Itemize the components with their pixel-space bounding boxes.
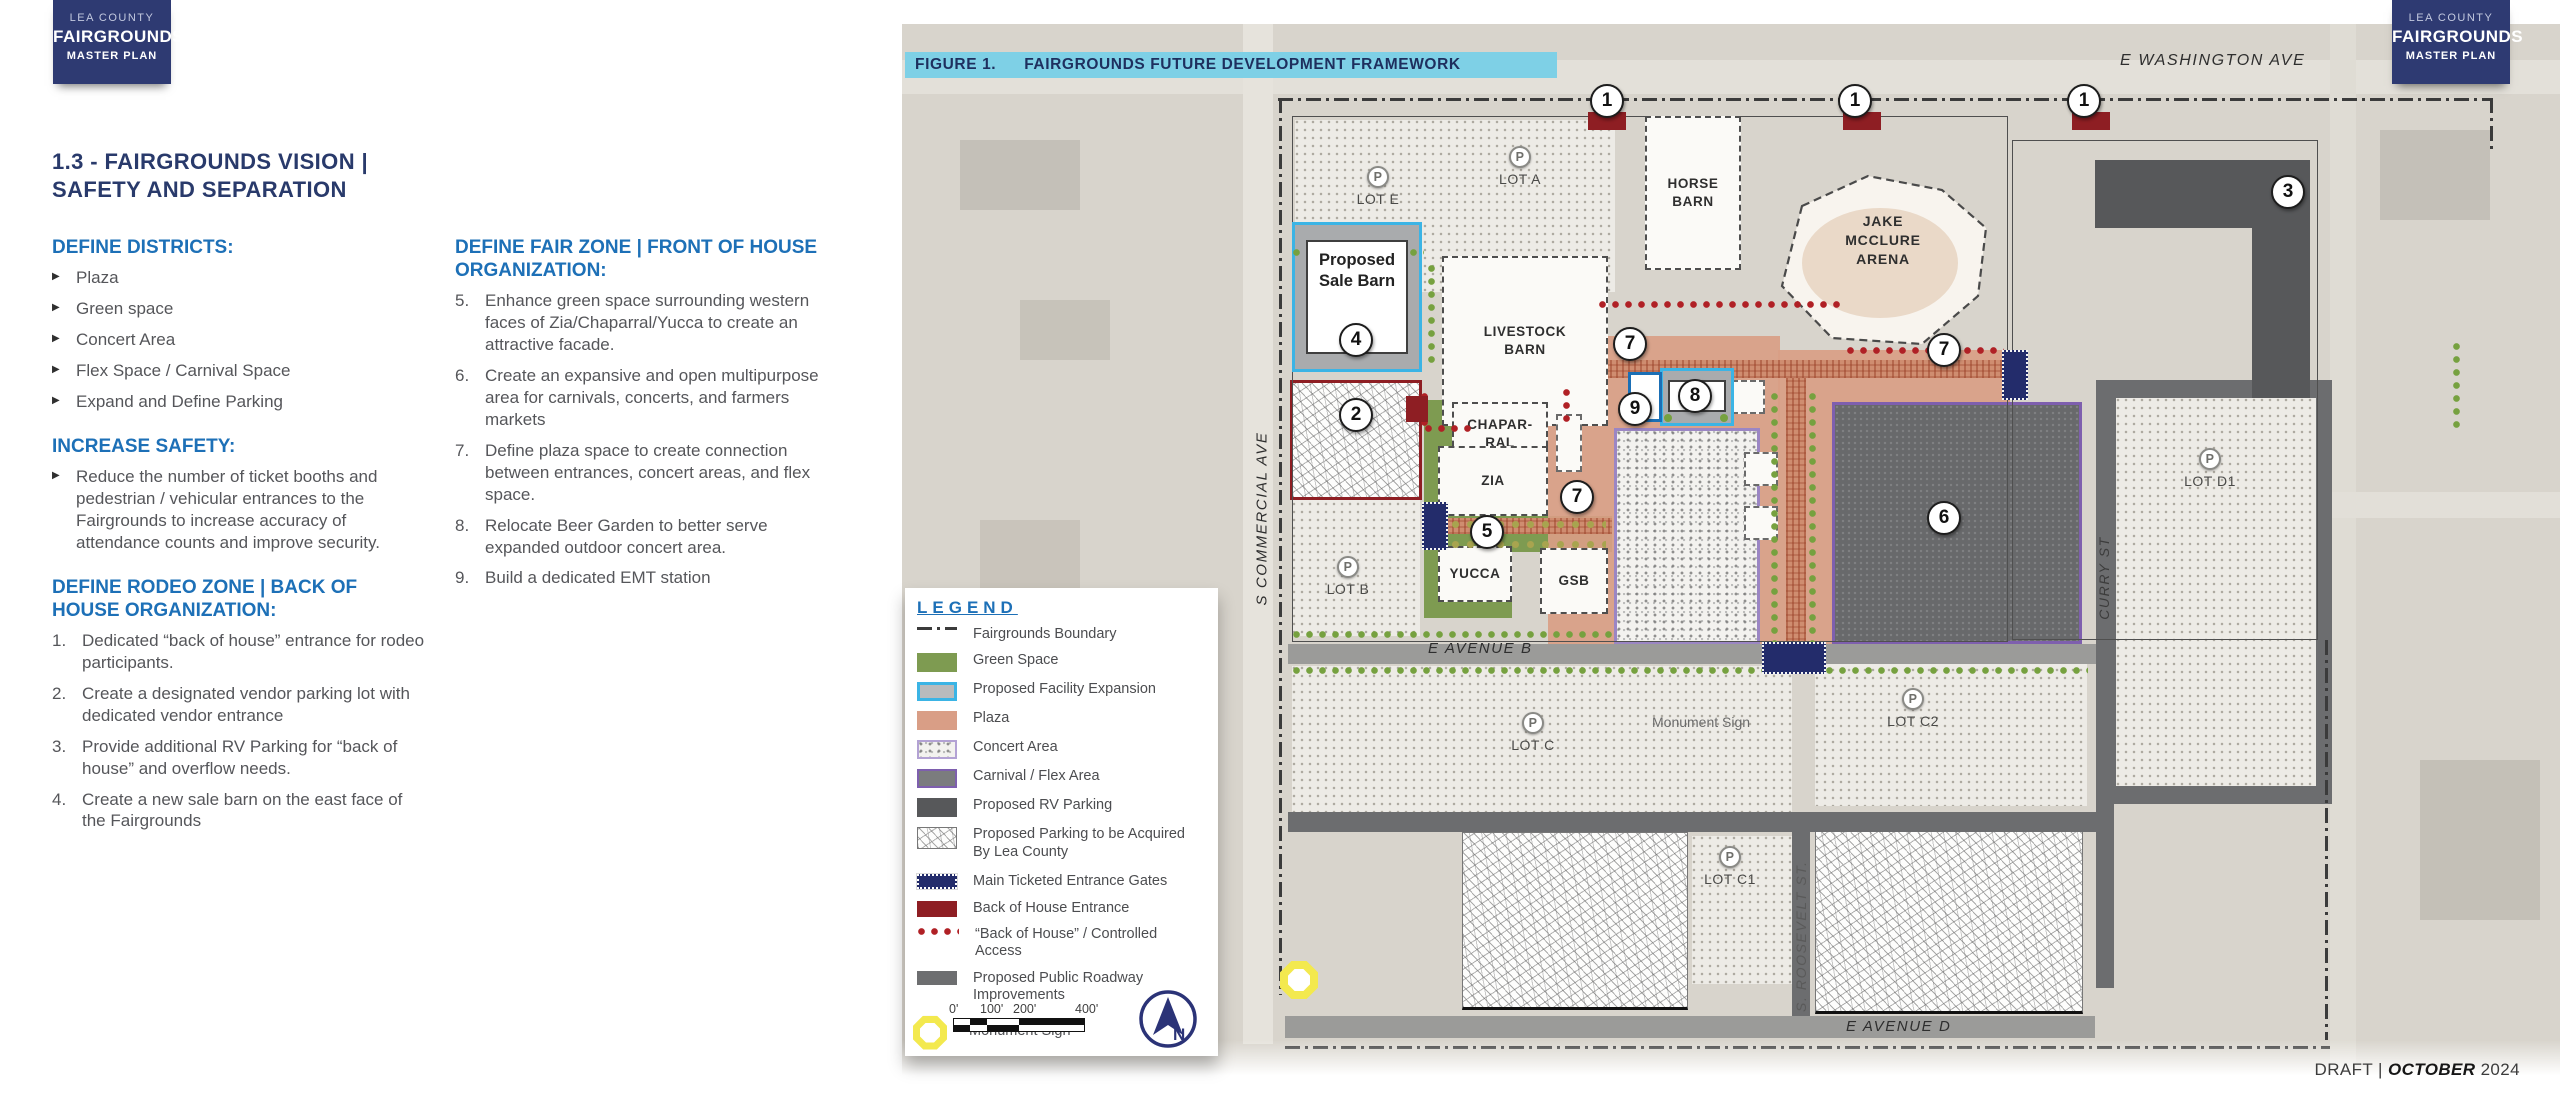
item-number: 3. xyxy=(52,736,74,780)
safety-heading: INCREASE SAFETY: xyxy=(52,435,426,458)
item-number: 6. xyxy=(455,365,477,431)
marker-5-green-space: 5 xyxy=(1470,515,1504,549)
parking-icon: P xyxy=(1337,556,1359,578)
legend-label: Carnival / Flex Area xyxy=(973,768,1100,785)
numbered-item: 4.Create a new sale barn on the east fac… xyxy=(52,789,426,833)
numbered-item: 3.Provide additional RV Parking for “bac… xyxy=(52,736,426,780)
concert-area-swatch xyxy=(917,740,957,759)
green-dotted-livestock xyxy=(1427,264,1436,368)
lot-a-text: LOT A xyxy=(1499,171,1541,187)
lot-d1-text: LOT D1 xyxy=(2184,473,2236,489)
numbered-item: 9.Build a dedicated EMT station xyxy=(455,567,827,589)
horse-barn-label: HORSE BARN xyxy=(1658,175,1728,210)
parking-icon: P xyxy=(1902,688,1924,710)
legend-label: “Back of House” / Controlled Access xyxy=(975,926,1195,961)
yucca-label: YUCCA xyxy=(1449,565,1500,583)
east-parcel-outline xyxy=(2012,140,2318,640)
lot-e-label: PLOT E xyxy=(1340,166,1416,207)
road-e-avenue-b xyxy=(1288,644,2100,664)
numbered-item: 5.Enhance green space surrounding wester… xyxy=(455,290,827,356)
column-districts: DEFINE DISTRICTS: ▶Plaza ▶Green space ▶C… xyxy=(52,236,426,841)
item-text: Build a dedicated EMT station xyxy=(485,567,711,589)
lot-b-label: PLOT B xyxy=(1310,556,1386,597)
bullet-icon: ▶ xyxy=(52,365,64,382)
marker-1-gate-east: 1 xyxy=(2067,84,2101,118)
bullet-icon: ▶ xyxy=(52,272,64,289)
bullet-icon: ▶ xyxy=(52,471,64,554)
green-dotted-east-boundary xyxy=(2452,342,2461,428)
footer-month: OCTOBER xyxy=(2388,1060,2476,1079)
beer-garden-tree xyxy=(1664,414,1672,422)
green-dotted-walkway-east xyxy=(1808,392,1817,644)
bullet-text: Plaza xyxy=(76,267,119,289)
page-title-line2: SAFETY AND SEPARATION xyxy=(52,176,482,204)
acquired-parking-area-southeast xyxy=(1815,818,2083,1014)
acquired-parking-area-southwest xyxy=(1462,832,1688,1010)
entrance-gates-swatch xyxy=(917,874,957,889)
marker-7-plaza-east: 7 xyxy=(1927,333,1961,367)
legend-row-concert: Concert Area xyxy=(917,739,1218,759)
bullet-icon: ▶ xyxy=(52,334,64,351)
badge-plan: MASTER PLAN xyxy=(2392,50,2510,62)
badge-county: LEA COUNTY xyxy=(53,12,171,24)
numbered-item: 2.Create a designated vendor parking lot… xyxy=(52,683,426,727)
controlled-access-swatch xyxy=(917,927,959,936)
lot-a-label: PLOT A xyxy=(1482,146,1558,187)
street-label-commercial: S COMMERCIAL AVE xyxy=(1254,446,1271,606)
bullet-text: Flex Space / Carnival Space xyxy=(76,360,291,382)
aerial-block xyxy=(2380,130,2490,220)
item-number: 2. xyxy=(52,683,74,727)
item-text: Create a designated vendor parking lot w… xyxy=(82,683,426,727)
figure-title-bar: FIGURE 1. FAIRGROUNDS FUTURE DEVELOPMENT… xyxy=(905,52,1557,78)
green-dotted-ave-b-south xyxy=(1292,666,2088,675)
legend-label: Green Space xyxy=(973,652,1058,669)
legend-row-entrance-gates: Main Ticketed Entrance Gates xyxy=(917,873,1218,890)
street-label-roosevelt: S. ROOSEVELT ST. xyxy=(1793,872,1809,1012)
ticketed-entrance-gate-south xyxy=(1762,642,1826,674)
lot-c1-text: LOT C1 xyxy=(1704,871,1756,887)
marker-6-carnival: 6 xyxy=(1927,501,1961,535)
road-lot-c-south xyxy=(1288,812,2098,832)
bullet-item: ▶Flex Space / Carnival Space xyxy=(52,360,426,382)
item-number: 7. xyxy=(455,440,477,506)
item-number: 1. xyxy=(52,630,74,674)
item-number: 8. xyxy=(455,515,477,559)
aerial-block xyxy=(960,140,1080,210)
item-text: Enhance green space surrounding western … xyxy=(485,290,827,356)
badge-county: LEA COUNTY xyxy=(2392,12,2510,24)
boundary-line-left xyxy=(1279,98,1282,995)
arena-label: JAKE MCCLURE ARENA xyxy=(1772,212,1994,269)
aerial-road-vertical-right xyxy=(2330,24,2356,1080)
red-dotted-vertical xyxy=(1562,388,1571,428)
footer-draft: DRAFT xyxy=(2315,1060,2373,1079)
street-label-avenue-d: E AVENUE D xyxy=(1846,1018,1951,1035)
legend-label: Proposed Facility Expansion xyxy=(973,681,1156,698)
marker-7-plaza-north: 7 xyxy=(1613,327,1647,361)
aerial-block xyxy=(1020,300,1110,360)
parking-icon: P xyxy=(1719,846,1741,868)
bullet-text: Concert Area xyxy=(76,329,175,351)
north-letter: N xyxy=(1173,1025,1185,1044)
scale-bar: 0' 100' 200' 400' xyxy=(953,1002,1093,1032)
marker-1-gate-center: 1 xyxy=(1838,84,1872,118)
arena-label-line3: ARENA xyxy=(1772,250,1994,269)
boh-entrance-swatch xyxy=(917,901,957,917)
boundary-line-right xyxy=(2490,98,2493,152)
districts-heading: DEFINE DISTRICTS: xyxy=(52,236,426,259)
marker-2-vendor-lot: 2 xyxy=(1339,398,1373,432)
footer-divider: | xyxy=(2378,1060,2383,1079)
legend-row-boundary: Fairgrounds Boundary xyxy=(917,626,1218,643)
facility-expansion-swatch xyxy=(917,682,957,701)
lot-c2-text: LOT C2 xyxy=(1887,713,1939,729)
figure-label: FIGURE 1. xyxy=(915,56,996,74)
lot-c-text: LOT C xyxy=(1511,737,1554,753)
bullet-item: ▶Plaza xyxy=(52,267,426,289)
legend-panel: LEGEND Fairgrounds Boundary Green Space … xyxy=(905,588,1218,1056)
lot-c-label: PLOT C xyxy=(1495,712,1571,753)
legend-row-facility-expansion: Proposed Facility Expansion xyxy=(917,681,1218,701)
green-space-swatch xyxy=(917,653,957,672)
red-dotted-arena-south xyxy=(1846,346,2004,355)
road-e-avenue-d xyxy=(1285,1016,2095,1038)
legend-row-controlled-access: “Back of House” / Controlled Access xyxy=(917,926,1218,961)
bullet-item: ▶Expand and Define Parking xyxy=(52,391,426,413)
bullet-item: ▶Green space xyxy=(52,298,426,320)
green-dotted-walkway-west xyxy=(1770,392,1779,644)
legend-label: Proposed RV Parking xyxy=(973,797,1112,814)
aerial-road-horizontal-right xyxy=(2330,492,2560,518)
olive-dotted-row-2 xyxy=(1436,540,1606,549)
item-text: Define plaza space to create connection … xyxy=(485,440,827,506)
boh-entrance-vendor xyxy=(1406,396,1428,422)
monument-sign-swatch xyxy=(913,1016,947,1050)
page-title: 1.3 - FAIRGROUNDS VISION | SAFETY AND SE… xyxy=(52,148,482,204)
lot-e-text: LOT E xyxy=(1357,191,1400,207)
marker-7-plaza-west: 7 xyxy=(1560,480,1594,514)
numbered-item: 7.Define plaza space to create connectio… xyxy=(455,440,827,506)
boundary-line-top xyxy=(1278,98,2492,101)
red-dotted-north xyxy=(1598,300,1846,309)
bullet-item: ▶Reduce the number of ticket booths and … xyxy=(52,466,426,554)
arena-label-line2: MCCLURE xyxy=(1772,231,1994,250)
roadway-improvements-swatch xyxy=(917,971,957,985)
livestock-barn-label: LIVESTOCK BARN xyxy=(1470,323,1580,358)
scale-bar-row-2 xyxy=(953,1025,1085,1032)
monument-sign-label: Monument Sign xyxy=(1652,714,1750,730)
yucca-building: YUCCA xyxy=(1438,546,1512,602)
item-number: 9. xyxy=(455,567,477,589)
numbered-item: 1.Dedicated “back of house” entrance for… xyxy=(52,630,426,674)
legend-label: Main Ticketed Entrance Gates xyxy=(973,873,1167,890)
marker-1-gate-west: 1 xyxy=(1590,84,1624,118)
footer-year: 2024 xyxy=(2481,1060,2520,1079)
lot-c2-label: PLOT C2 xyxy=(1875,688,1951,729)
legend-row-boh-entrance: Back of House Entrance xyxy=(917,900,1218,917)
scale-bar-row-1 xyxy=(953,1018,1085,1025)
ticketed-entrance-gate-east xyxy=(2002,350,2028,400)
plaza-swatch xyxy=(917,711,957,730)
item-text: Relocate Beer Garden to better serve exp… xyxy=(485,515,827,559)
item-text: Provide additional RV Parking for “back … xyxy=(82,736,426,780)
parking-icon: P xyxy=(1509,146,1531,168)
legend-row-plaza: Plaza xyxy=(917,710,1218,730)
bullet-icon: ▶ xyxy=(52,303,64,320)
zia-label: ZIA xyxy=(1481,472,1505,490)
lea-county-badge-right: LEA COUNTY FAIRGROUNDS MASTER PLAN xyxy=(2392,0,2510,84)
scale-bar-labels: 0' 100' 200' 400' xyxy=(953,1002,1093,1018)
parking-icon: P xyxy=(1367,166,1389,188)
street-label-avenue-b: E AVENUE B xyxy=(1428,640,1533,657)
arena-label-line1: JAKE xyxy=(1772,212,1994,231)
badge-plan: MASTER PLAN xyxy=(53,50,171,62)
aerial-block xyxy=(2420,760,2540,920)
column-fair-zone: DEFINE FAIR ZONE | FRONT OF HOUSE ORGANI… xyxy=(455,236,827,598)
gsb-label: GSB xyxy=(1558,572,1589,590)
item-text: Create an expansive and open multipurpos… xyxy=(485,365,827,431)
marker-8-beer-garden: 8 xyxy=(1678,379,1712,413)
beer-garden-tree xyxy=(1720,414,1728,422)
acquired-parking-swatch xyxy=(917,827,957,849)
rodeo-heading: DEFINE RODEO ZONE | BACK OF HOUSE ORGANI… xyxy=(52,576,426,622)
fair-heading: DEFINE FAIR ZONE | FRONT OF HOUSE ORGANI… xyxy=(455,236,827,282)
carnival-flex-swatch xyxy=(917,769,957,788)
rv-parking-swatch xyxy=(917,798,957,817)
footer-draft-date: DRAFT | OCTOBER 2024 xyxy=(2315,1060,2520,1080)
boundary-line-right-lower xyxy=(2325,640,2328,1040)
marker-3-rv-parking: 3 xyxy=(2271,175,2305,209)
parking-lot-c2 xyxy=(1815,660,2087,806)
numbered-item: 6.Create an expansive and open multipurp… xyxy=(455,365,827,431)
sale-barn-label-line2: Sale Barn xyxy=(1319,271,1395,292)
bullet-text: Reduce the number of ticket booths and p… xyxy=(76,466,426,554)
livestock-barn: LIVESTOCK BARN xyxy=(1442,256,1608,426)
legend-row-acquired-parking: Proposed Parking to be Acquired By Lea C… xyxy=(917,826,1218,861)
scale-tick-200: 200' xyxy=(1013,1002,1036,1016)
lea-county-badge-left: LEA COUNTY FAIRGROUNDS MASTER PLAN xyxy=(53,0,171,84)
monument-sign-icon-center xyxy=(1288,969,1310,991)
scale-tick-400: 400' xyxy=(1075,1002,1098,1016)
lot-d1-label: PLOT D1 xyxy=(2172,448,2248,489)
legend-label: Back of House Entrance xyxy=(973,900,1129,917)
legend-label: Fairgrounds Boundary xyxy=(973,626,1116,643)
parking-icon: P xyxy=(2199,448,2221,470)
badge-name: FAIRGROUNDS xyxy=(2392,27,2510,47)
item-number: 5. xyxy=(455,290,477,356)
red-dotted-chaparral xyxy=(1424,424,1472,433)
olive-dotted-row-1 xyxy=(1436,520,1606,529)
item-number: 4. xyxy=(52,789,74,833)
scale-tick-100: 100' xyxy=(980,1002,1003,1016)
item-text: Dedicated “back of house” entrance for r… xyxy=(82,630,426,674)
bullet-item: ▶Concert Area xyxy=(52,329,426,351)
chaparral-label-line1: CHAPAR- xyxy=(1467,417,1532,432)
street-label-washington: E WASHINGTON AVE xyxy=(2120,52,2305,70)
legend-row-rv-parking: Proposed RV Parking xyxy=(917,797,1218,817)
figure-title: FAIRGROUNDS FUTURE DEVELOPMENT FRAMEWORK xyxy=(1024,56,1460,74)
green-dotted-ave-b-north xyxy=(1292,630,1612,639)
north-arrow-icon: N xyxy=(1137,988,1199,1050)
badge-name: FAIRGROUNDS xyxy=(53,27,171,47)
zia-building: ZIA xyxy=(1438,446,1548,516)
item-text: Create a new sale barn on the east face … xyxy=(82,789,426,833)
legend-row-green-space: Green Space xyxy=(917,652,1218,672)
lot-b-text: LOT B xyxy=(1327,581,1370,597)
ticketed-entrance-gate-west xyxy=(1422,502,1448,550)
marker-9-emt-station: 9 xyxy=(1618,392,1652,426)
gsb-building: GSB xyxy=(1540,548,1608,614)
legend-title: LEGEND xyxy=(917,598,1218,618)
scale-tick-0: 0' xyxy=(949,1002,958,1016)
numbered-item: 8.Relocate Beer Garden to better serve e… xyxy=(455,515,827,559)
marker-4-sale-barn: 4 xyxy=(1339,323,1373,357)
page-title-line1: 1.3 - FAIRGROUNDS VISION | xyxy=(52,148,482,176)
boundary-line-swatch xyxy=(917,627,957,630)
legend-label: Plaza xyxy=(973,710,1009,727)
bullet-text: Expand and Define Parking xyxy=(76,391,283,413)
legend-label: Concert Area xyxy=(973,739,1058,756)
parking-icon: P xyxy=(1522,712,1544,734)
bullet-icon: ▶ xyxy=(52,396,64,413)
street-label-curry: CURRY ST xyxy=(2096,528,2112,628)
lot-c1-label: PLOT C1 xyxy=(1692,846,1768,887)
horse-barn: HORSE BARN xyxy=(1645,116,1741,270)
sale-barn-label-line1: Proposed xyxy=(1319,250,1395,271)
legend-row-carnival: Carnival / Flex Area xyxy=(917,768,1218,788)
bullet-text: Green space xyxy=(76,298,173,320)
legend-label: Proposed Parking to be Acquired By Lea C… xyxy=(973,826,1193,861)
